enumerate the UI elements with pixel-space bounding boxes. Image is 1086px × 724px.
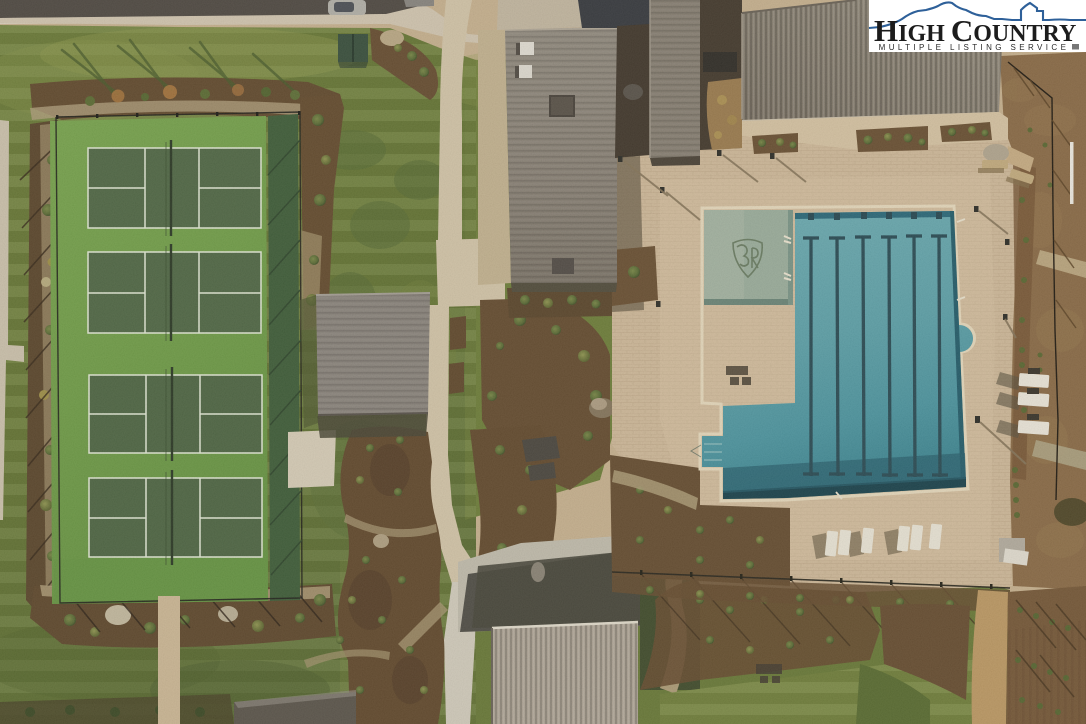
svg-text:MULTIPLE LISTING SERVICE: MULTIPLE LISTING SERVICE <box>879 43 1070 52</box>
